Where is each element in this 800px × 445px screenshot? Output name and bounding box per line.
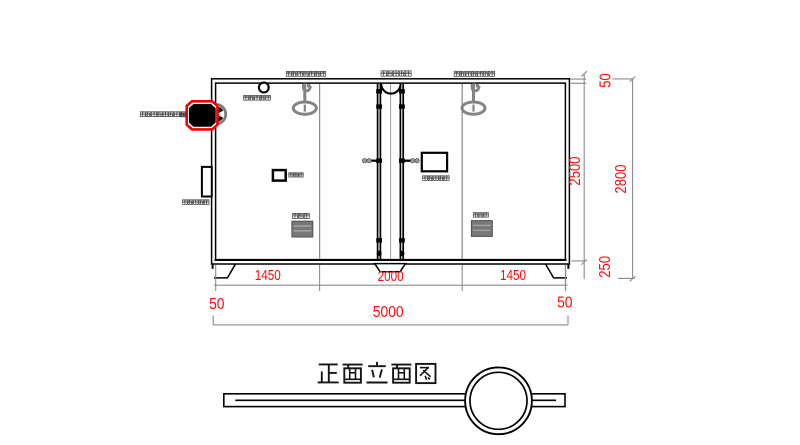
- svg-text:250: 250: [597, 256, 614, 278]
- svg-text:1450: 1450: [255, 267, 281, 284]
- svg-text:2000: 2000: [378, 268, 404, 285]
- svg-text:1450: 1450: [500, 267, 526, 284]
- svg-text:2500: 2500: [567, 156, 584, 185]
- svg-text:5000: 5000: [373, 303, 404, 321]
- svg-text:50: 50: [209, 295, 224, 313]
- svg-text:50: 50: [597, 73, 614, 88]
- svg-text:2800: 2800: [613, 164, 630, 193]
- svg-text:50: 50: [557, 294, 572, 312]
